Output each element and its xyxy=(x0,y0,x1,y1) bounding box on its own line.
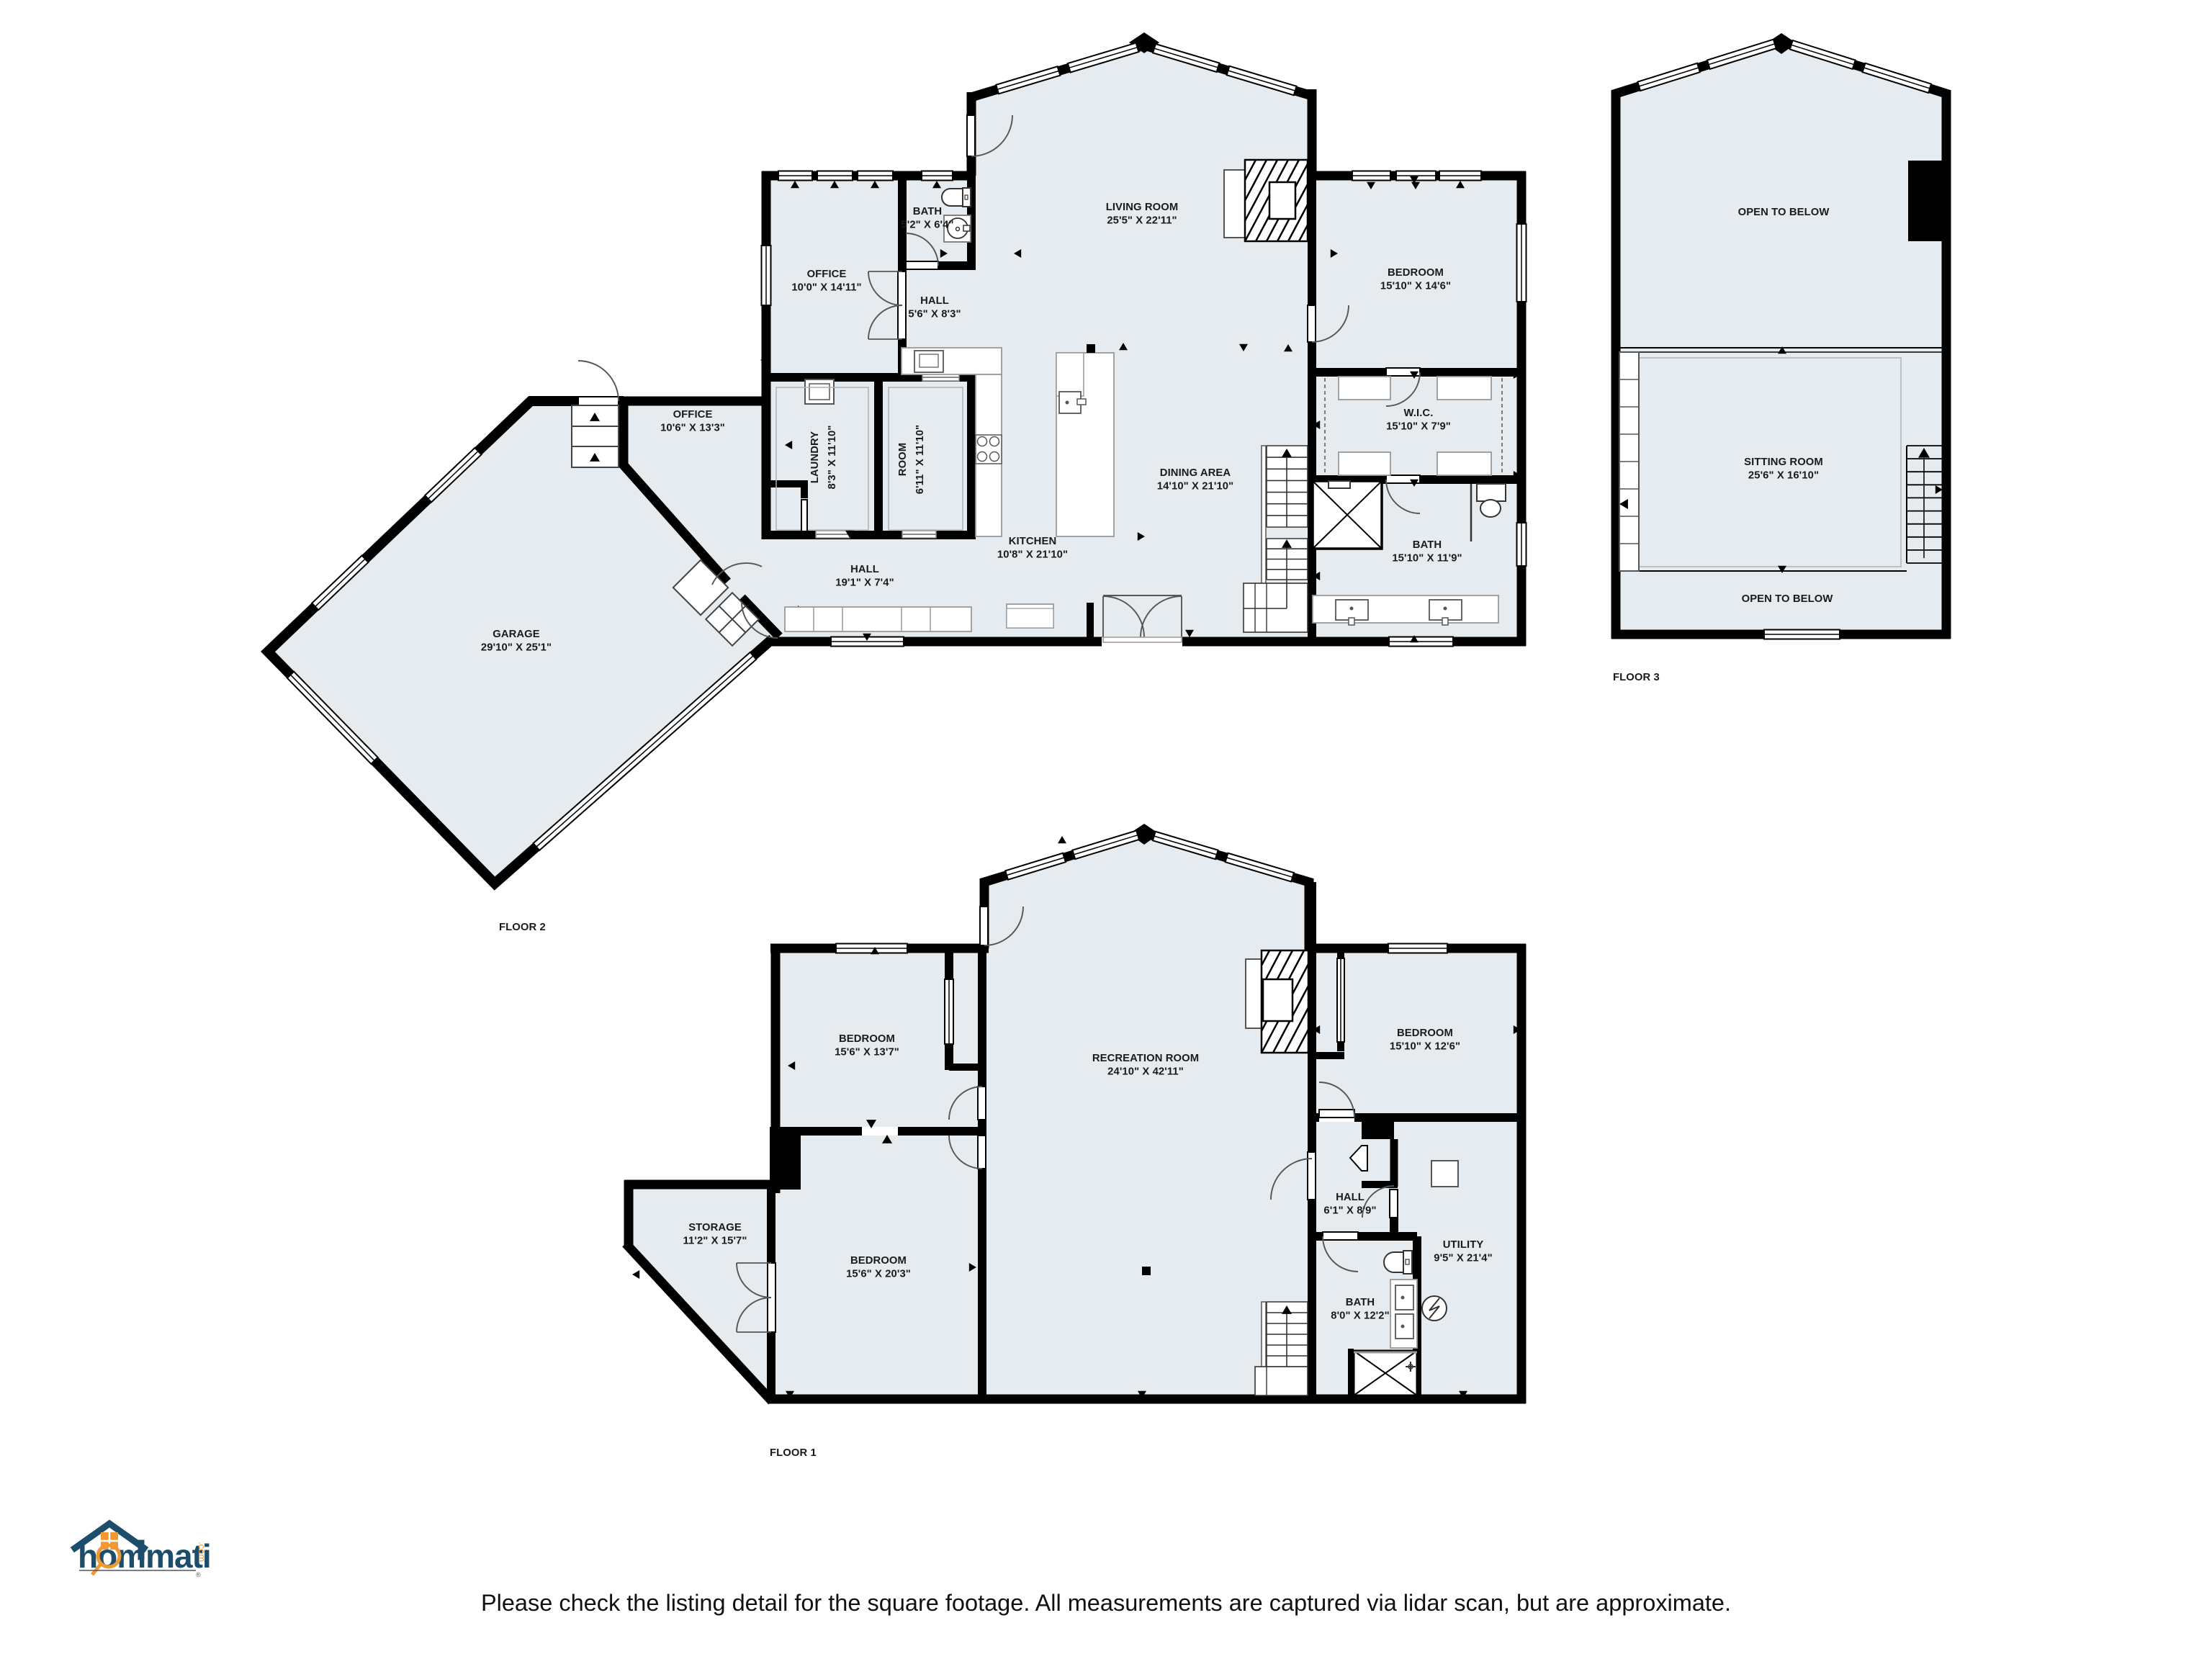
svg-text:ROOM: ROOM xyxy=(897,443,909,476)
svg-text:11'2" X 15'7": 11'2" X 15'7" xyxy=(683,1236,747,1247)
svg-text:STORAGE: STORAGE xyxy=(688,1222,742,1233)
svg-text:BATH: BATH xyxy=(913,206,942,217)
svg-text:BEDROOM: BEDROOM xyxy=(850,1255,907,1267)
svg-text:BATH: BATH xyxy=(1413,539,1442,551)
svg-text:RECREATION ROOM: RECREATION ROOM xyxy=(1092,1053,1199,1064)
svg-text:15'6" X 20'3": 15'6" X 20'3" xyxy=(846,1269,911,1280)
svg-text:15'10" X 12'6": 15'10" X 12'6" xyxy=(1390,1041,1460,1053)
svg-text:FLOOR 3: FLOOR 3 xyxy=(1613,672,1660,683)
svg-text:UTILITY: UTILITY xyxy=(1443,1239,1484,1251)
svg-text:LIVING ROOM: LIVING ROOM xyxy=(1106,202,1179,213)
svg-text:9'5" X 21'4": 9'5" X 21'4" xyxy=(1434,1253,1493,1264)
svg-text:HALL: HALL xyxy=(1336,1192,1364,1203)
svg-text:5'6" X 8'3": 5'6" X 8'3" xyxy=(908,309,961,320)
svg-text:OFFICE: OFFICE xyxy=(673,409,713,421)
svg-text:HALL: HALL xyxy=(850,564,879,575)
svg-text:FLOOR 2: FLOOR 2 xyxy=(499,922,546,933)
svg-text:19'1" X 7'4": 19'1" X 7'4" xyxy=(835,577,894,589)
svg-text:15'10" X 7'9": 15'10" X 7'9" xyxy=(1386,421,1451,433)
svg-text:15'10" X 11'9": 15'10" X 11'9" xyxy=(1392,553,1462,565)
svg-text:10'6" X 13'3": 10'6" X 13'3" xyxy=(660,423,725,434)
svg-text:5'2" X 6'4": 5'2" X 6'4" xyxy=(901,220,953,231)
svg-text:OPEN TO BELOW: OPEN TO BELOW xyxy=(1742,593,1833,605)
svg-text:SITTING ROOM: SITTING ROOM xyxy=(1744,457,1823,468)
svg-text:14'10" X 21'10": 14'10" X 21'10" xyxy=(1157,481,1234,493)
svg-text:BEDROOM: BEDROOM xyxy=(839,1033,895,1045)
svg-text:29'10" X 25'1": 29'10" X 25'1" xyxy=(481,642,552,654)
svg-text:24'10" X 42'11": 24'10" X 42'11" xyxy=(1107,1066,1184,1078)
svg-text:15'10" X 14'6": 15'10" X 14'6" xyxy=(1380,281,1451,292)
svg-text:LAUNDRY: LAUNDRY xyxy=(809,431,821,484)
svg-text:25'5" X 22'11": 25'5" X 22'11" xyxy=(1107,215,1177,227)
svg-text:W.I.C.: W.I.C. xyxy=(1404,408,1434,419)
svg-text:10'8" X 21'10": 10'8" X 21'10" xyxy=(997,549,1068,561)
svg-text:8'0" X 12'2": 8'0" X 12'2" xyxy=(1331,1310,1390,1322)
svg-text:BATH: BATH xyxy=(1346,1297,1375,1308)
svg-text:8'3" X 11'10": 8'3" X 11'10" xyxy=(827,425,838,489)
svg-text:HALL: HALL xyxy=(920,295,949,307)
svg-text:BEDROOM: BEDROOM xyxy=(1388,267,1444,279)
svg-text:KITCHEN: KITCHEN xyxy=(1009,536,1056,547)
svg-text:®: ® xyxy=(196,1571,201,1578)
svg-text:15'6" X 13'7": 15'6" X 13'7" xyxy=(835,1047,899,1058)
svg-text:Please check the listing detai: Please check the listing detail for the … xyxy=(481,1590,1731,1616)
svg-text:OPEN TO BELOW: OPEN TO BELOW xyxy=(1738,207,1830,218)
svg-text:BEDROOM: BEDROOM xyxy=(1397,1028,1453,1039)
svg-text:25'6" X 16'10": 25'6" X 16'10" xyxy=(1748,470,1819,482)
svg-text:FLOOR 1: FLOOR 1 xyxy=(770,1447,817,1459)
svg-text:DINING AREA: DINING AREA xyxy=(1160,467,1231,479)
svg-text:GARAGE: GARAGE xyxy=(493,629,540,640)
svg-text:6'11" X 11'10": 6'11" X 11'10" xyxy=(914,425,926,495)
svg-text:.com: .com xyxy=(197,1542,207,1562)
svg-text:6'1" X 8'9": 6'1" X 8'9" xyxy=(1323,1205,1376,1217)
svg-text:OFFICE: OFFICE xyxy=(807,269,847,280)
svg-text:10'0" X 14'11": 10'0" X 14'11" xyxy=(791,282,861,294)
